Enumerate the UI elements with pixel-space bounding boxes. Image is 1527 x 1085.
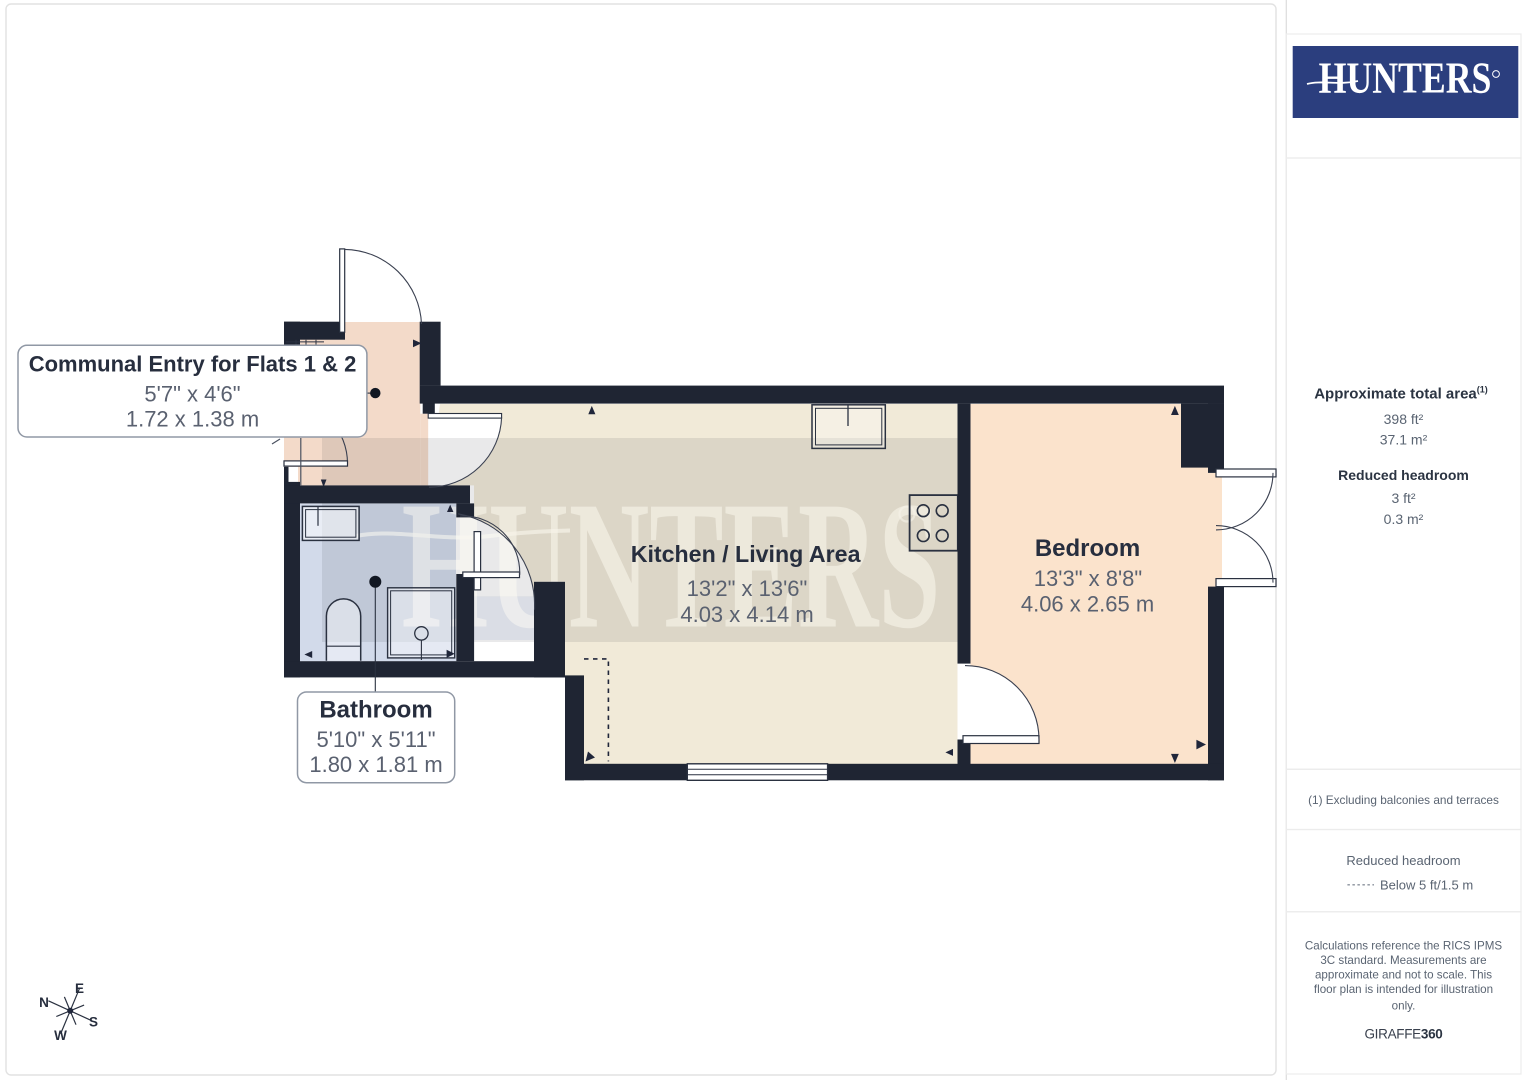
svg-text:Communal Entry for Flats 1 & 2: Communal Entry for Flats 1 & 2: [29, 352, 357, 377]
svg-text:(1) Excluding balconies and te: (1) Excluding balconies and terraces: [1308, 793, 1499, 807]
svg-text:Bedroom: Bedroom: [1035, 535, 1140, 562]
svg-text:only.: only.: [1392, 1000, 1416, 1013]
svg-text:37.1 m²: 37.1 m²: [1380, 432, 1428, 448]
svg-text:W: W: [54, 1028, 67, 1043]
svg-text:E: E: [75, 981, 84, 996]
svg-text:Approximate total area(1): Approximate total area(1): [1314, 385, 1488, 403]
svg-text:GIRAFFE360: GIRAFFE360: [1364, 1027, 1442, 1042]
svg-text:3 ft²: 3 ft²: [1391, 490, 1415, 506]
svg-text:1.72 x 1.38 m: 1.72 x 1.38 m: [126, 407, 259, 432]
svg-text:Calculations reference the RIC: Calculations reference the RICS IPMS: [1305, 940, 1502, 953]
svg-text:4.03 x 4.14 m: 4.03 x 4.14 m: [680, 602, 813, 627]
svg-text:1.80 x 1.81 m: 1.80 x 1.81 m: [309, 752, 442, 777]
svg-text:Reduced headroom: Reduced headroom: [1338, 467, 1469, 483]
svg-text:Below 5 ft/1.5 m: Below 5 ft/1.5 m: [1380, 878, 1473, 893]
svg-text:S: S: [89, 1015, 98, 1030]
svg-text:Kitchen / Living Area: Kitchen / Living Area: [631, 541, 862, 567]
svg-text:5'10" x 5'11": 5'10" x 5'11": [316, 727, 435, 752]
svg-text:398 ft²: 398 ft²: [1384, 411, 1424, 427]
svg-text:Bathroom: Bathroom: [319, 697, 432, 724]
svg-text:floor plan is intended for ill: floor plan is intended for illustration: [1314, 983, 1493, 996]
svg-text:4.06 x 2.65 m: 4.06 x 2.65 m: [1021, 592, 1154, 617]
svg-text:5'7" x 4'6": 5'7" x 4'6": [144, 382, 240, 407]
svg-text:13'2" x 13'6": 13'2" x 13'6": [687, 576, 808, 601]
svg-text:approximate and not to scale.: approximate and not to scale. This: [1315, 968, 1492, 981]
svg-text:Reduced headroom: Reduced headroom: [1346, 853, 1460, 868]
svg-text:0.3 m²: 0.3 m²: [1384, 511, 1424, 527]
svg-text:HUNTERS: HUNTERS: [1319, 53, 1492, 102]
svg-text:N: N: [39, 995, 49, 1010]
svg-text:13'3" x 8'8": 13'3" x 8'8": [1034, 566, 1142, 591]
svg-text:3C standard. Measurements are: 3C standard. Measurements are: [1320, 954, 1486, 967]
